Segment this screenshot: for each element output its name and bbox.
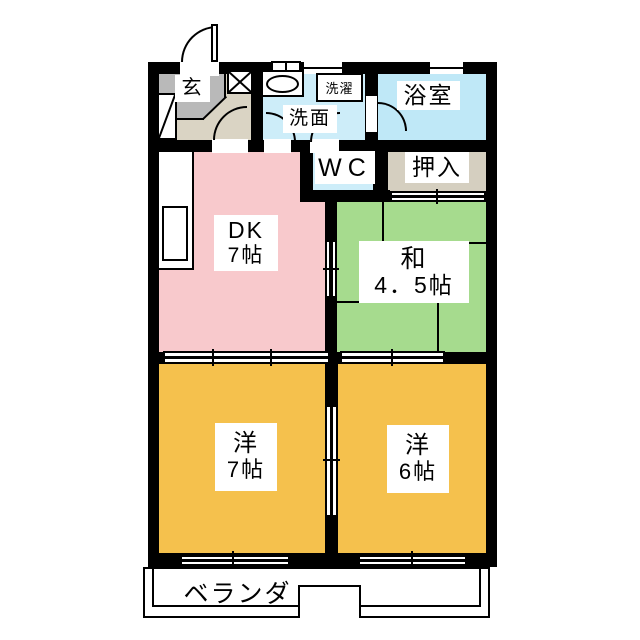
western7-window-tick bbox=[232, 551, 234, 566]
sliding-door-bedrooms bbox=[331, 405, 338, 517]
western6-size-text: 6帖 bbox=[399, 460, 437, 485]
wall-wc-oshiire bbox=[373, 140, 388, 202]
genkan-tile-edge-right bbox=[224, 72, 226, 98]
washroom-window-line bbox=[304, 67, 342, 69]
sliding-door-tick bbox=[212, 349, 214, 366]
western6-label: 洋 6帖 bbox=[387, 425, 449, 493]
dk-label-text: DK bbox=[228, 218, 264, 244]
wall-right bbox=[486, 62, 497, 567]
oshiire-label-text: 押入 bbox=[412, 155, 462, 181]
genkan-dk-door-opening bbox=[212, 139, 248, 153]
washitsu-label: 和 4．5帖 bbox=[359, 241, 469, 303]
western7-size-text: 7帖 bbox=[227, 458, 265, 483]
kitchen-counter bbox=[162, 206, 188, 261]
veranda-label-text: ベランダ bbox=[183, 580, 291, 608]
western7-window bbox=[180, 560, 290, 566]
sliding-door-dk-western7 bbox=[163, 357, 330, 364]
sliding-door-tick bbox=[391, 349, 393, 366]
western7-label-text: 洋 bbox=[233, 431, 259, 458]
sliding-door-oshiire bbox=[390, 196, 486, 202]
sliding-door-tick bbox=[436, 189, 438, 204]
wc-label-text: WC bbox=[318, 154, 372, 182]
bathroom-door-opening bbox=[366, 96, 377, 132]
sliding-door-tick bbox=[270, 349, 272, 366]
genkan-label-text: 玄 bbox=[182, 77, 204, 99]
floor-plan: 洗濯 玄 洗面 浴室 WC 押入 DK 7帖 和 4．5帖 洋 7帖 洋 6帖 bbox=[0, 0, 640, 640]
washing-machine-box: 洗濯 bbox=[316, 73, 363, 102]
dk-label: DK 7帖 bbox=[214, 215, 278, 271]
dk-size-text: 7帖 bbox=[228, 244, 265, 268]
entrance-door-leaf bbox=[211, 24, 218, 62]
shoe-cabinet-diagonal-icon bbox=[159, 95, 175, 138]
laundry-label: 洗濯 bbox=[325, 78, 353, 97]
pipe-shaft-x-icon bbox=[229, 72, 251, 92]
sliding-door-tick bbox=[323, 268, 339, 270]
entrance-door-opening bbox=[180, 60, 219, 76]
bathroom-label-text: 浴室 bbox=[404, 83, 454, 109]
shoe-cabinet bbox=[157, 93, 177, 140]
bathroom-label: 浴室 bbox=[397, 81, 460, 110]
wc-label: WC bbox=[315, 151, 375, 184]
washitsu-label-text: 和 bbox=[400, 245, 427, 273]
veranda-label: ベランダ bbox=[180, 577, 295, 610]
genkan-label: 玄 bbox=[175, 75, 210, 102]
sliding-door-tick bbox=[323, 459, 340, 461]
washroom-label: 洗面 bbox=[283, 105, 337, 133]
pipe-shaft-box bbox=[227, 70, 253, 94]
sink-basin bbox=[266, 75, 299, 93]
washroom-label-text: 洗面 bbox=[289, 108, 331, 129]
western6-label-text: 洋 bbox=[405, 433, 431, 460]
bathroom-window-line bbox=[430, 67, 463, 69]
oshiire-label: 押入 bbox=[405, 152, 469, 183]
western7-label: 洋 7帖 bbox=[215, 423, 277, 491]
washitsu-size-text: 4．5帖 bbox=[374, 273, 454, 299]
western6-window-tick bbox=[411, 551, 413, 566]
veranda-partition-notch bbox=[298, 585, 361, 618]
